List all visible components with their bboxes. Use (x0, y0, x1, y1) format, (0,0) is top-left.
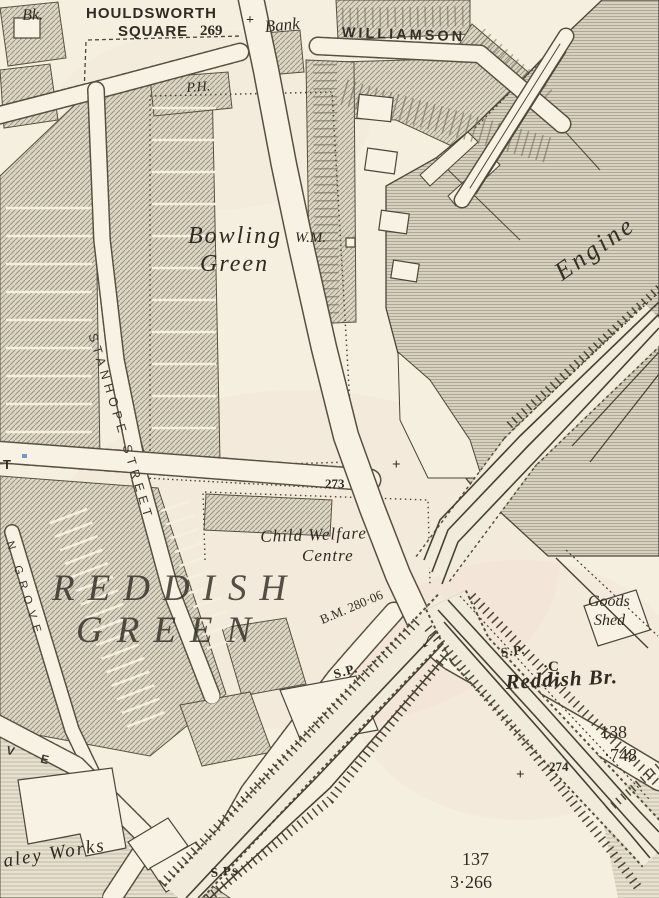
label-houldsworth-line1: HOULDSWORTH (86, 6, 217, 21)
label-public-house: P.H. (186, 80, 211, 96)
label-street-t: T (3, 458, 11, 471)
boundary-cross-icon: + (516, 768, 525, 783)
label-goods-shed-line2: Shed (594, 613, 625, 629)
label-parcel-138: 138 (600, 723, 627, 741)
label-parcel-137: 137 (462, 850, 489, 868)
label-green: GREEN (76, 612, 265, 649)
map-canvas[interactable]: Bk. HOULDSWORTH SQUARE 269 Bank WILLIAMS… (0, 0, 659, 898)
blue-fleck (22, 454, 27, 458)
label-reddish: REDDISH (52, 570, 299, 607)
label-spot-height-273: 273 (325, 477, 345, 490)
label-signal-posts: S.Ps (210, 863, 239, 879)
label-bowling-green-line2: Green (200, 252, 269, 276)
label-houldsworth-line2: SQUARE (118, 24, 188, 39)
boundary-cross-icon: + (246, 14, 254, 28)
label-child-welfare-line2: Centre (302, 547, 354, 564)
label-child-welfare-line1: Child Welfare (260, 524, 367, 545)
label-weighing-machine: W.M. (295, 231, 326, 246)
boundary-cross-icon: + (392, 458, 401, 473)
label-spot-height-274: 274 (549, 760, 569, 773)
label-bowling-green-line1: Bowling (188, 224, 282, 248)
label-reddish-bridge: Reddish Br. (505, 666, 618, 693)
label-spot-height-269: 269 (200, 24, 223, 39)
label-goods-shed-line1: Goods (588, 594, 630, 610)
label-acreage-748: ·748 (604, 746, 637, 764)
label-acreage-3266: 3·266 (450, 873, 492, 891)
label-bank: Bank (264, 15, 300, 35)
label-bk: Bk. (22, 7, 43, 24)
label-signal-post-b: S.P. (500, 643, 526, 659)
